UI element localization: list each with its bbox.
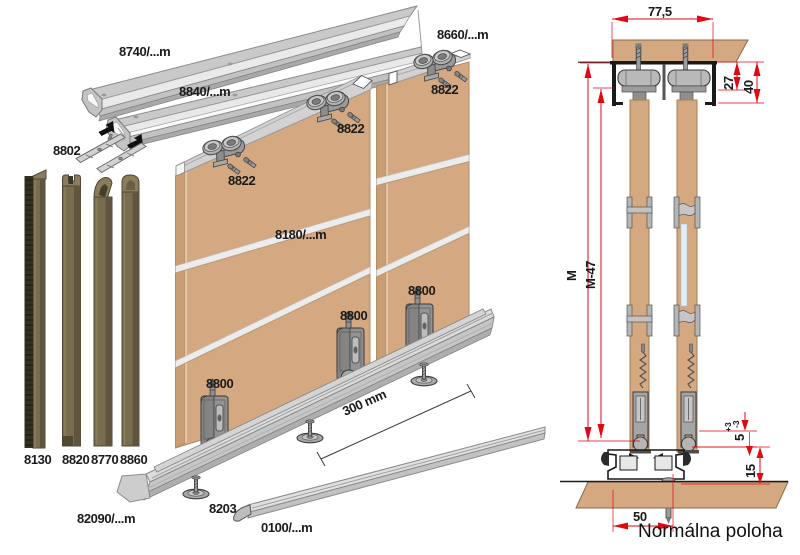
svg-text:8180/...m: 8180/...m [275, 227, 326, 242]
svg-text:8203: 8203 [209, 501, 236, 516]
svg-text:M-47: M-47 [583, 261, 598, 289]
svg-text:8740/...m: 8740/...m [119, 44, 170, 59]
svg-text:8822: 8822 [337, 121, 364, 136]
svg-text:5: 5 [732, 434, 747, 441]
svg-text:15: 15 [743, 464, 758, 478]
svg-text:8820: 8820 [62, 452, 89, 467]
svg-text:8860: 8860 [120, 452, 147, 467]
svg-text:M: M [564, 271, 579, 281]
svg-text:27: 27 [721, 76, 736, 90]
svg-text:8840/...m: 8840/...m [179, 84, 230, 99]
svg-text:8660/...m: 8660/...m [437, 27, 488, 42]
svg-text:8800: 8800 [340, 308, 367, 323]
svg-text:40: 40 [741, 80, 756, 94]
svg-text:8822: 8822 [431, 82, 458, 97]
svg-text:8822: 8822 [228, 173, 255, 188]
svg-text:82090/...m: 82090/...m [77, 511, 135, 526]
svg-text:8770: 8770 [91, 452, 118, 467]
svg-text:0100/...m: 0100/...m [261, 520, 312, 535]
svg-text:8800: 8800 [408, 283, 435, 298]
svg-text:8130: 8130 [24, 452, 51, 467]
svg-text:Normálna poloha: Normálna poloha [638, 521, 783, 542]
svg-text:8802: 8802 [53, 143, 80, 158]
svg-text:8800: 8800 [206, 376, 233, 391]
svg-text:77,5: 77,5 [648, 4, 672, 19]
svg-text:-3: -3 [731, 420, 741, 428]
